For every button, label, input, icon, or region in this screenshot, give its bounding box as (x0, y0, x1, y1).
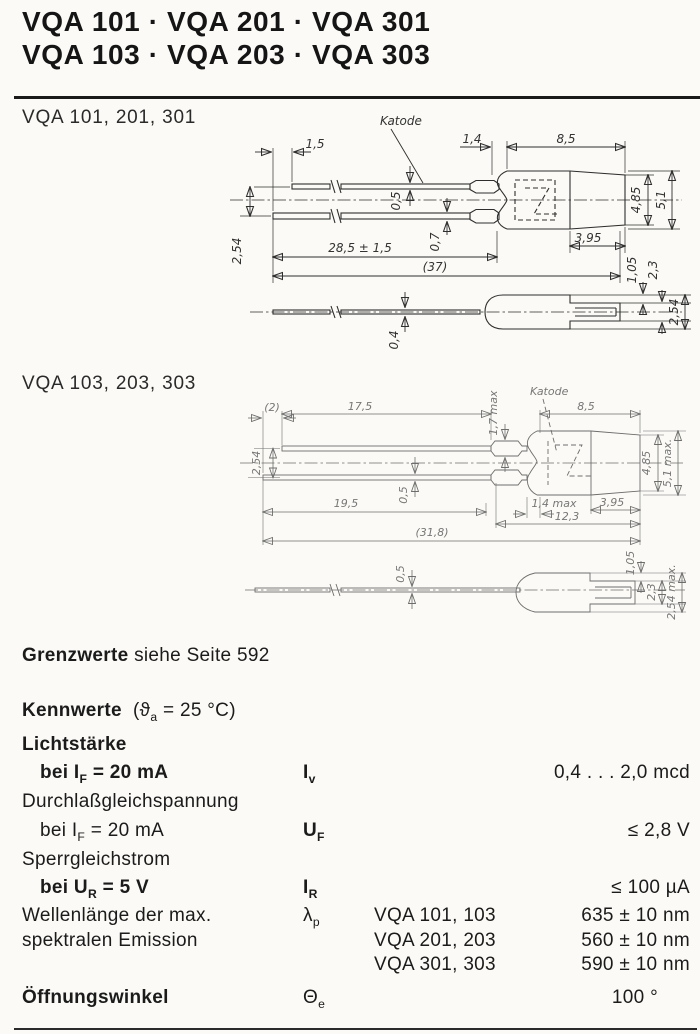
dim-label: 1,05 (624, 551, 637, 576)
symbol: Θe (303, 987, 325, 1011)
type-variant: VQA 301, 303 (374, 954, 496, 976)
dim-label: 1,7 max (487, 390, 500, 435)
led-body-top-view (240, 399, 685, 495)
led-leads-top-view (273, 180, 499, 223)
footer-divider (14, 1028, 697, 1030)
dim-label: 3,95 (575, 231, 602, 245)
value: ≤ 2,8 V (628, 820, 690, 842)
dim-label: 0,7 (428, 232, 442, 251)
dim-label: (31,8) (415, 526, 448, 539)
ambient-condition: (ϑa = 25 °C) (127, 700, 235, 721)
parameter-label: Öffnungswinkel (22, 987, 169, 1009)
dim-label: 19,5 (334, 497, 359, 510)
section-title-vqa101: VQA 101, 201, 301 (22, 107, 196, 129)
dim-label: 5,1 max. (661, 439, 674, 487)
value: 100 ° (612, 987, 658, 1009)
grenzwerte-label: Grenzwerte (22, 645, 128, 666)
dimension-drawing-vqa101: 1,5 Katode 1,4 8,5 2,54 0,5 0,7 28,5 ± 1… (210, 103, 700, 365)
led-body-top-view (230, 171, 682, 229)
datasheet-page: VQA 101 · VQA 201 · VQA 301 VQA 103 · VQ… (0, 0, 700, 1034)
parameter-label: spektralen Emission (22, 930, 198, 952)
parameter-label: Wellenlänge der max. (22, 905, 211, 927)
symbol: UF (303, 820, 325, 844)
condition: bei IF = 20 mA (40, 820, 164, 844)
kennwerte-label: Kennwerte (22, 700, 122, 721)
dim-label: (2) (264, 401, 280, 414)
dim-label: 0,5 (389, 191, 403, 210)
dim-label: 4,85 (640, 451, 653, 476)
condition: bei UR = 5 V (40, 877, 149, 901)
dimension-lines (248, 410, 686, 545)
parameter-label: Sperrgleichstrom (22, 849, 170, 871)
header-divider (14, 96, 700, 99)
value: 560 ± 10 nm (581, 930, 690, 952)
title-line-2: VQA 103 · VQA 203 · VQA 303 (22, 38, 430, 71)
dim-label: 2,3 (646, 260, 660, 279)
dim-label: 2,54 (230, 238, 244, 265)
dim-label: 2,54 (250, 451, 263, 476)
dim-label: 0,4 (387, 330, 401, 349)
cathode-label: Katode (530, 385, 569, 398)
symbol: Iv (303, 762, 316, 786)
dim-label: 17,5 (348, 400, 373, 413)
parameter-label: Lichtstärke (22, 734, 127, 756)
led-side-view (245, 561, 686, 612)
grenzwerte-text: siehe Seite 592 (134, 645, 270, 666)
dim-label: 2,3 (645, 583, 658, 601)
dim-label: 1,05 (625, 257, 639, 284)
dim-label: 2,54 max. (665, 564, 678, 619)
dim-label: (37) (423, 260, 448, 274)
dim-label: 5,1 (654, 190, 668, 209)
title-line-1: VQA 101 · VQA 201 · VQA 301 (22, 5, 430, 38)
dim-label: 0,5 (394, 565, 407, 583)
value: 590 ± 10 nm (581, 954, 690, 976)
value: ≤ 100 µA (611, 877, 690, 899)
dim-label: 1,4 (462, 132, 481, 146)
dim-label: 8,5 (577, 400, 595, 413)
dim-label: 1,5 (305, 137, 324, 151)
dim-label: 2,54 (667, 299, 681, 326)
section-title-vqa103: VQA 103, 203, 303 (22, 373, 196, 395)
kennwerte-heading: Kennwerte (ϑa = 25 °C) (22, 700, 236, 724)
symbol: λp (303, 905, 320, 929)
grenzwerte-note: Grenzwerte siehe Seite 592 (22, 645, 270, 667)
type-variant: VQA 101, 103 (374, 905, 496, 927)
dim-label: 0,5 (397, 486, 410, 504)
dim-label: 28,5 ± 1,5 (328, 241, 392, 255)
type-variant: VQA 201, 203 (374, 930, 496, 952)
symbol: IR (303, 877, 318, 901)
led-side-view (250, 282, 691, 334)
cathode-label: Katode (380, 114, 422, 128)
dimension-lines (240, 129, 680, 283)
condition: bei IF = 20 mA (40, 762, 168, 786)
dim-label: 3,95 (600, 496, 625, 509)
dim-label: 4,85 (629, 187, 643, 214)
page-title: VQA 101 · VQA 201 · VQA 301 VQA 103 · VQ… (22, 5, 430, 71)
dimension-drawing-vqa103: (2) 17,5 1,7 max Katode 8,5 2,54 0,5 19,… (230, 383, 690, 625)
value: 635 ± 10 nm (581, 905, 690, 927)
dim-label: 8,5 (556, 132, 575, 146)
dim-label: 1,4 max (532, 497, 577, 510)
dim-label: 12,3 (555, 510, 580, 523)
parameter-label: Durchlaßgleichspannung (22, 791, 239, 813)
value: 0,4 . . . 2,0 mcd (554, 762, 690, 784)
